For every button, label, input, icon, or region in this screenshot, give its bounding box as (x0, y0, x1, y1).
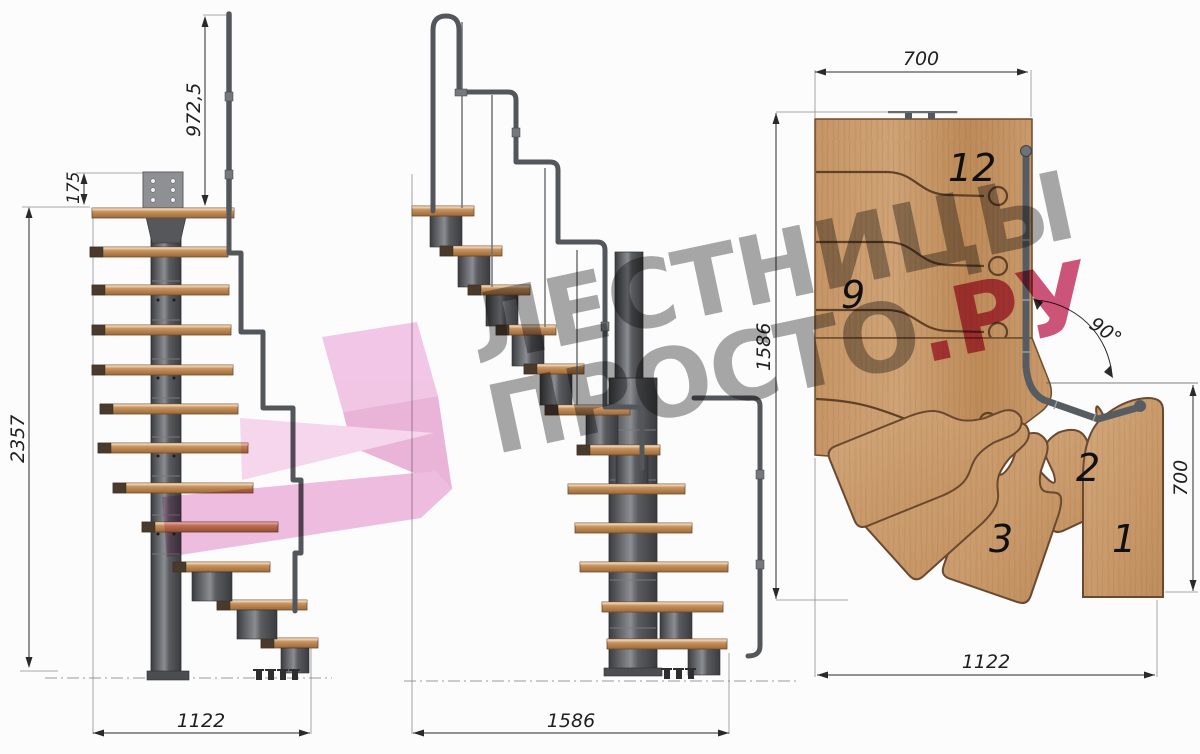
dim-plan-top-width: 700 (903, 48, 939, 70)
dim-front-width: 1122 (177, 710, 225, 732)
side-handrail (433, 16, 764, 656)
dim-handrail-height: 972,5 (183, 83, 205, 137)
dim-turn-angle: 90° (1085, 313, 1125, 350)
step-number-9: 9 (841, 273, 865, 317)
front-view: 972,5 175 2357 1122 (7, 14, 332, 737)
dim-total-height: 2357 (7, 415, 29, 463)
plan-view: 90° 700 1586 700 1122 1 (753, 48, 1198, 679)
front-handrail (225, 14, 301, 611)
side-view: 1586 (404, 16, 796, 737)
technical-drawing: 972,5 175 2357 1122 (0, 0, 1200, 750)
dim-top-offset: 175 (64, 172, 84, 204)
dim-plan-right-width: 700 (1170, 460, 1192, 496)
dim-plan-side-length: 1586 (753, 323, 775, 371)
dim-plan-bottom-width: 1122 (962, 651, 1010, 673)
turn-angle-annotation: 90° (1033, 298, 1198, 383)
step-number-3: 3 (989, 517, 1013, 561)
dim-side-length: 1586 (547, 710, 595, 732)
step-number-1: 1 (1112, 517, 1136, 561)
staircase-drawing-page: 972,5 175 2357 1122 (0, 0, 1200, 750)
front-support-blocks (192, 572, 309, 673)
step-number-2: 2 (1076, 446, 1100, 490)
side-feet (661, 668, 696, 679)
step-number-12: 12 (948, 146, 996, 190)
plan-step-1 (1083, 398, 1163, 597)
plan-fan-steps-upper (829, 410, 1062, 603)
wall-mount-plate (143, 172, 183, 208)
